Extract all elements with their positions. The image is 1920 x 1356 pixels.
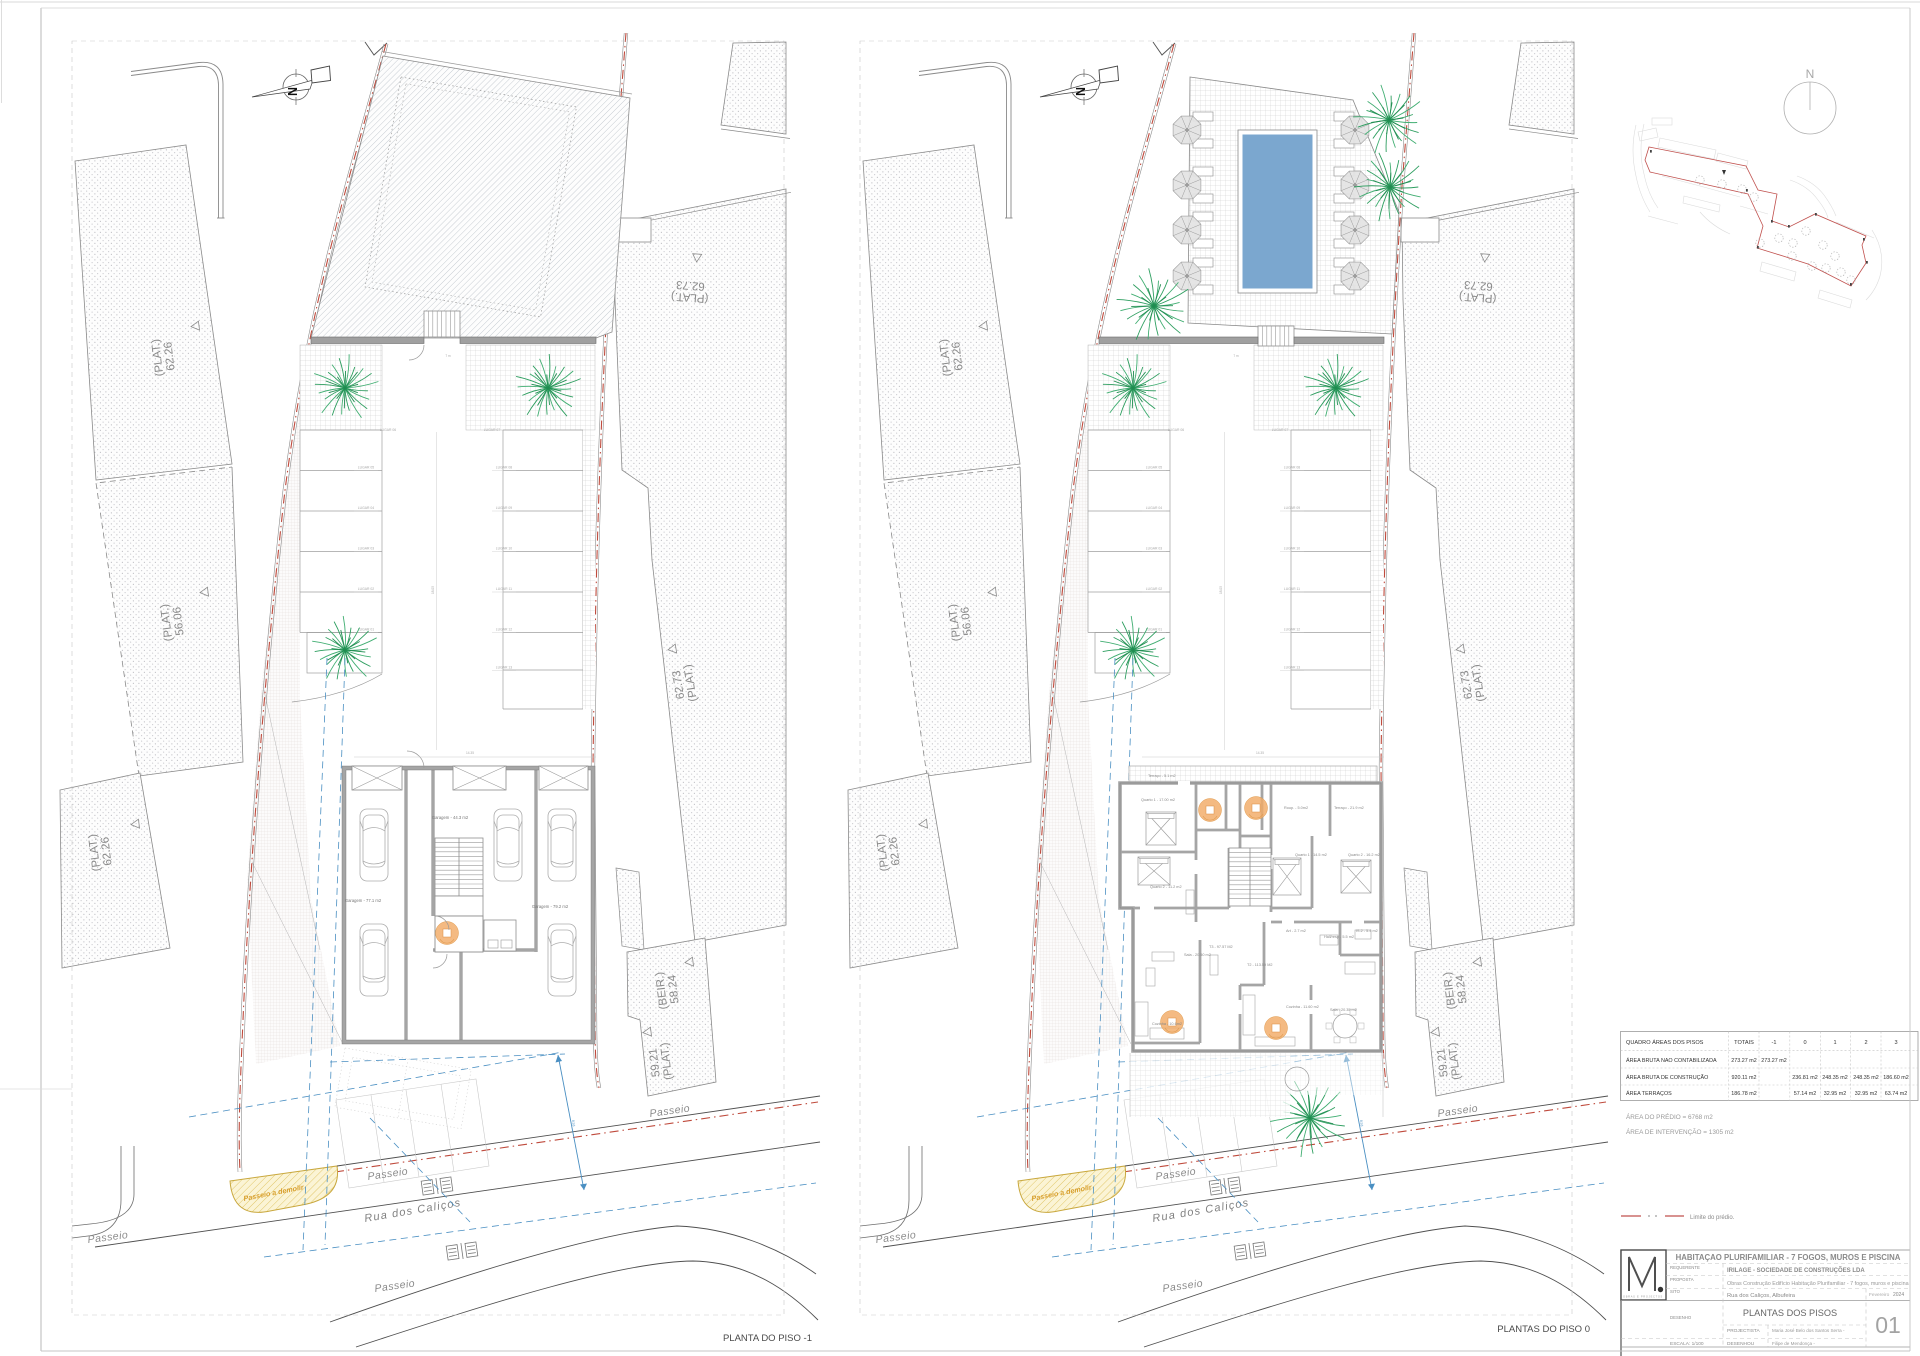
svg-text:LUGAR 06: LUGAR 06 bbox=[1168, 428, 1185, 432]
svg-text:Filipe de Mendonça -: Filipe de Mendonça - bbox=[1772, 1341, 1815, 1346]
svg-text:LUGAR 03: LUGAR 03 bbox=[1146, 547, 1163, 551]
svg-text:LUGAR 11: LUGAR 11 bbox=[496, 587, 512, 591]
svg-text:Quarto 1 - 14.5 m2: Quarto 1 - 14.5 m2 bbox=[1295, 853, 1327, 857]
svg-text:14.35: 14.35 bbox=[1256, 751, 1264, 755]
svg-text:LUGAR 11: LUGAR 11 bbox=[1284, 587, 1300, 591]
svg-text:LUGAR 12: LUGAR 12 bbox=[496, 628, 513, 632]
svg-text:57.14 m2: 57.14 m2 bbox=[1794, 1091, 1816, 1097]
svg-text:ÁREA BRUTA DE CONSTRUÇÃO: ÁREA BRUTA DE CONSTRUÇÃO bbox=[1626, 1074, 1708, 1081]
svg-text:Roup. - 5.0m2: Roup. - 5.0m2 bbox=[1284, 806, 1308, 810]
svg-text:LUGAR 04: LUGAR 04 bbox=[358, 506, 375, 510]
svg-text:IS.2 - 5.4 m2: IS.2 - 5.4 m2 bbox=[1356, 929, 1378, 933]
svg-text:LUGAR 09: LUGAR 09 bbox=[1284, 506, 1301, 510]
svg-text:LUGAR 01: LUGAR 01 bbox=[358, 628, 375, 632]
svg-text:LUGAR 03: LUGAR 03 bbox=[358, 547, 375, 551]
svg-text:LUGAR 08: LUGAR 08 bbox=[1284, 466, 1301, 470]
svg-text:ÁREA TERRAÇOS: ÁREA TERRAÇOS bbox=[1626, 1090, 1672, 1097]
svg-text:2024: 2024 bbox=[1893, 1292, 1904, 1298]
svg-text:LUGAR 06: LUGAR 06 bbox=[380, 428, 397, 432]
svg-text:Cozinha - 10.6m2: Cozinha - 10.6m2 bbox=[1152, 1022, 1182, 1026]
svg-text:3: 3 bbox=[1894, 1040, 1897, 1046]
svg-text:Sala - 20.35 m2: Sala - 20.35 m2 bbox=[1330, 1008, 1357, 1012]
svg-text:PROPOSTA: PROPOSTA bbox=[1670, 1277, 1694, 1282]
svg-text:32.95 m2: 32.95 m2 bbox=[1824, 1091, 1846, 1097]
svg-text:Quarto 2 - 16.2 m2: Quarto 2 - 16.2 m2 bbox=[1348, 853, 1380, 857]
svg-text:Art - 2.7 m2: Art - 2.7 m2 bbox=[1286, 929, 1306, 933]
svg-text:Quarto 2 - 11.2 m2: Quarto 2 - 11.2 m2 bbox=[1150, 885, 1182, 889]
svg-text:LUGAR 13: LUGAR 13 bbox=[496, 666, 513, 670]
svg-text:LUGAR 10: LUGAR 10 bbox=[1284, 547, 1301, 551]
svg-text:Limite do prédio.: Limite do prédio. bbox=[1690, 1215, 1735, 1221]
svg-text:N: N bbox=[1074, 87, 1088, 96]
svg-text:7 m: 7 m bbox=[445, 354, 451, 358]
svg-text:T2 - 113.50 M2: T2 - 113.50 M2 bbox=[1247, 963, 1272, 967]
svg-text:Garagem - 44.3 m2: Garagem - 44.3 m2 bbox=[432, 815, 469, 820]
svg-text:Quarto 1 - 17.00 m2: Quarto 1 - 17.00 m2 bbox=[1141, 798, 1175, 802]
svg-text:236.81 m2: 236.81 m2 bbox=[1792, 1075, 1817, 1081]
svg-text:SITO: SITO bbox=[1670, 1289, 1681, 1294]
svg-text:DESENHO: DESENHO bbox=[1670, 1315, 1692, 1320]
svg-text:248.35 m2: 248.35 m2 bbox=[1822, 1075, 1847, 1081]
svg-text:8.53: 8.53 bbox=[1359, 1120, 1364, 1127]
svg-text:OBRAS E PROJECTOS: OBRAS E PROJECTOS bbox=[1623, 1295, 1663, 1299]
svg-text:T3 - 97.57 M2: T3 - 97.57 M2 bbox=[1209, 945, 1233, 949]
svg-text:LUGAR 02: LUGAR 02 bbox=[1146, 587, 1163, 591]
svg-text:2: 2 bbox=[1864, 1040, 1867, 1046]
svg-text:273.27 m2: 273.27 m2 bbox=[1731, 1058, 1756, 1064]
svg-text:LUGAR 07: LUGAR 07 bbox=[484, 428, 501, 432]
svg-text:186.78 m2: 186.78 m2 bbox=[1731, 1091, 1756, 1097]
svg-text:REQUERENTE: REQUERENTE bbox=[1670, 1265, 1700, 1270]
svg-text:PLANTAS DO PISO 0: PLANTAS DO PISO 0 bbox=[1497, 1324, 1590, 1335]
svg-text:920.11 m2: 920.11 m2 bbox=[1731, 1075, 1756, 1081]
svg-text:18.05: 18.05 bbox=[1219, 586, 1223, 594]
svg-text:Cozinha - 11.60 m2: Cozinha - 11.60 m2 bbox=[1286, 1005, 1319, 1009]
svg-text:LUGAR 13: LUGAR 13 bbox=[1284, 666, 1301, 670]
svg-text:-1: -1 bbox=[1772, 1040, 1777, 1046]
svg-text:LUGAR 01: LUGAR 01 bbox=[1146, 628, 1163, 632]
svg-text:7 m: 7 m bbox=[1233, 354, 1239, 358]
svg-text:ESCALA: 1/100: ESCALA: 1/100 bbox=[1670, 1341, 1704, 1347]
svg-text:IRILAGE - SOCIEDADE DE CONSTRU: IRILAGE - SOCIEDADE DE CONSTRUÇÕES LDA bbox=[1727, 1267, 1865, 1274]
svg-text:ÁREA BRUTA NAO CONTABILIZADA: ÁREA BRUTA NAO CONTABILIZADA bbox=[1626, 1057, 1717, 1064]
svg-text:LUGAR 12: LUGAR 12 bbox=[1284, 628, 1301, 632]
svg-text:273.27 m2: 273.27 m2 bbox=[1761, 1058, 1786, 1064]
svg-text:LUGAR 04: LUGAR 04 bbox=[1146, 506, 1163, 510]
svg-text:PLANTAS DOS PISOS: PLANTAS DOS PISOS bbox=[1743, 1308, 1837, 1318]
svg-text:Maria José Belo dos Santos Ser: Maria José Belo dos Santos Serra - bbox=[1772, 1328, 1845, 1333]
svg-text:248.35 m2: 248.35 m2 bbox=[1853, 1075, 1878, 1081]
svg-text:N: N bbox=[286, 87, 300, 96]
svg-text:Fevereiro: Fevereiro bbox=[1869, 1292, 1890, 1298]
svg-text:LUGAR 05: LUGAR 05 bbox=[358, 466, 375, 470]
svg-text:Rua dos Caliços, Albufeira: Rua dos Caliços, Albufeira bbox=[1727, 1293, 1796, 1299]
svg-text:Sala - 20.50 m2: Sala - 20.50 m2 bbox=[1184, 953, 1211, 957]
svg-text:N: N bbox=[1806, 67, 1815, 81]
svg-text:TOTAIS: TOTAIS bbox=[1734, 1040, 1754, 1046]
svg-text:32.95 m2: 32.95 m2 bbox=[1855, 1091, 1877, 1097]
svg-text:HABITAÇAO PLURIFAMILIAR - 7 FO: HABITAÇAO PLURIFAMILIAR - 7 FOGOS, MUROS… bbox=[1676, 1253, 1901, 1262]
svg-text:LUGAR 07: LUGAR 07 bbox=[1272, 428, 1289, 432]
svg-text:DESENHOU: DESENHOU bbox=[1727, 1341, 1755, 1347]
svg-text:14.35: 14.35 bbox=[466, 751, 474, 755]
svg-text:62.73: 62.73 bbox=[1464, 278, 1494, 292]
svg-text:PLANTA DO PISO -1: PLANTA DO PISO -1 bbox=[723, 1333, 812, 1344]
svg-text:LUGAR 08: LUGAR 08 bbox=[496, 466, 513, 470]
svg-text:63.74 m2: 63.74 m2 bbox=[1885, 1091, 1907, 1097]
svg-text:LUGAR 02: LUGAR 02 bbox=[358, 587, 375, 591]
svg-text:Garagem - 77.1 m2: Garagem - 77.1 m2 bbox=[345, 898, 382, 903]
svg-text:LUGAR 09: LUGAR 09 bbox=[496, 506, 513, 510]
svg-text:Garagem - 79.2 m2: Garagem - 79.2 m2 bbox=[532, 904, 569, 909]
svg-text:62.73: 62.73 bbox=[676, 278, 706, 292]
svg-text:01: 01 bbox=[1875, 1312, 1901, 1338]
svg-text:18.05: 18.05 bbox=[431, 586, 435, 594]
svg-text:Terraço - 5.1 m2: Terraço - 5.1 m2 bbox=[1148, 774, 1176, 778]
svg-text:ÁREA DE INTERVENÇÃO = 1305 m2: ÁREA DE INTERVENÇÃO = 1305 m2 bbox=[1626, 1127, 1734, 1136]
svg-text:186.60 m2: 186.60 m2 bbox=[1883, 1075, 1908, 1081]
svg-text:Hall/resp - 5.5 m2: Hall/resp - 5.5 m2 bbox=[1324, 935, 1354, 939]
svg-text:LUGAR 10: LUGAR 10 bbox=[496, 547, 513, 551]
svg-text:LUGAR 05: LUGAR 05 bbox=[1146, 466, 1163, 470]
svg-text:1: 1 bbox=[1833, 1040, 1836, 1046]
svg-text:8.53: 8.53 bbox=[571, 1120, 576, 1127]
svg-text:QUADRO ÁREAS DOS PISOS: QUADRO ÁREAS DOS PISOS bbox=[1626, 1039, 1704, 1046]
svg-text:ÁREA DO PRÉDIO = 6768 m2: ÁREA DO PRÉDIO = 6768 m2 bbox=[1626, 1112, 1713, 1121]
svg-text:0: 0 bbox=[1803, 1040, 1806, 1046]
svg-text:Terraço - 21.9 m2: Terraço - 21.9 m2 bbox=[1334, 806, 1364, 810]
svg-text:PROJECTISTA: PROJECTISTA bbox=[1727, 1328, 1760, 1334]
svg-text:Obras Construção Edifício Habi: Obras Construção Edifício Habitação Plur… bbox=[1727, 1281, 1909, 1287]
